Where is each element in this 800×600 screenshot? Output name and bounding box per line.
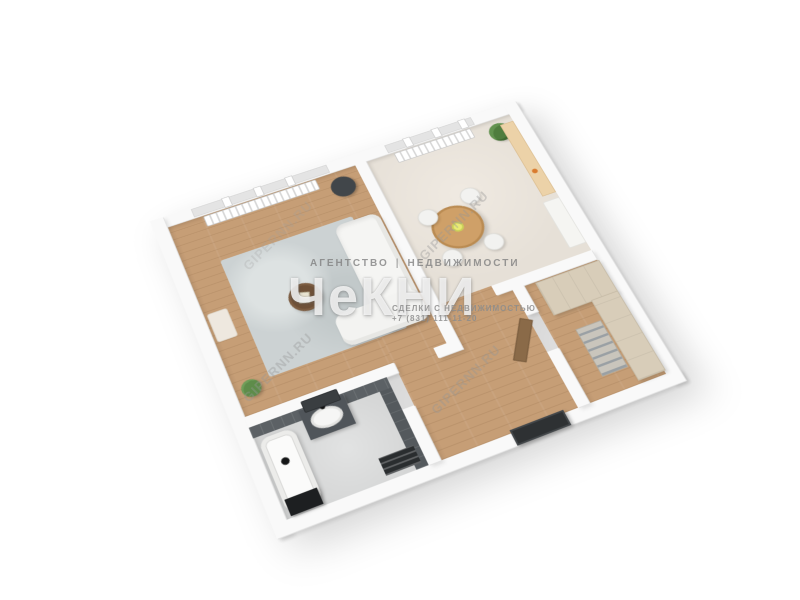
watermark-phone: +7 (831) 111-11-20 xyxy=(392,314,536,324)
watermark-tagline: СДЕЛКИ С НЕДВИЖИМОСТЬЮ xyxy=(392,304,536,314)
watermark-contact: СДЕЛКИ С НЕДВИЖИМОСТЬЮ +7 (831) 111-11-2… xyxy=(392,304,536,324)
floorplan-render: GIPERNN.RU GIPERNN.RU GIPERNN.RU GIPERNN… xyxy=(0,0,800,600)
